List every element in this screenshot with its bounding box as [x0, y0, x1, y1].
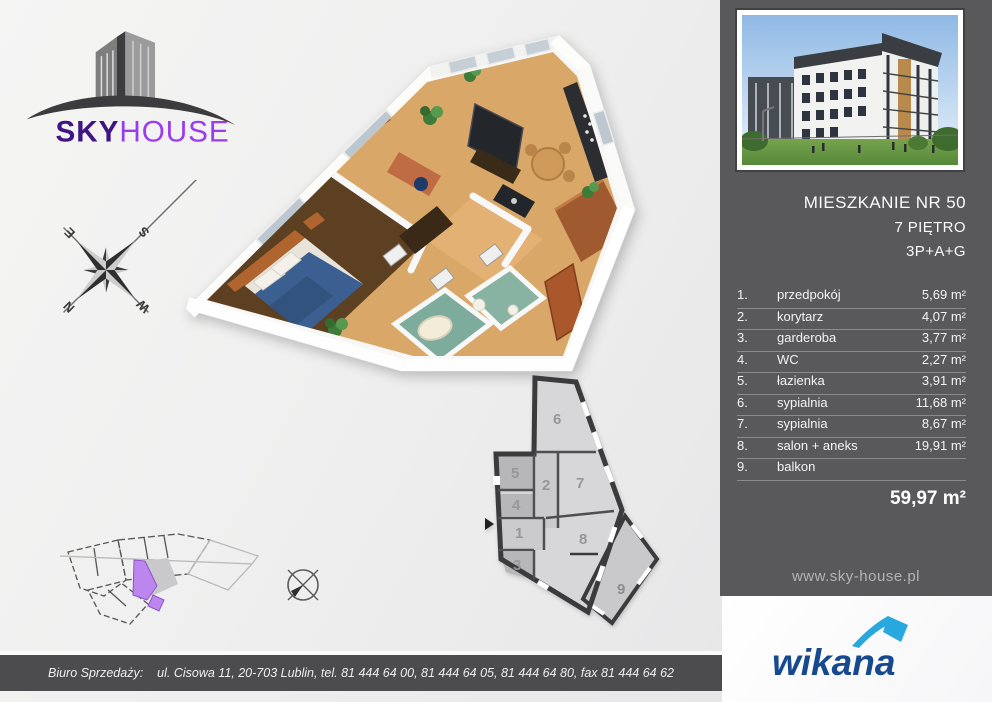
table-row: 9.balkon: [737, 459, 966, 481]
room-number: 8.: [737, 438, 777, 453]
table-row: 4.WC2,27 m²: [737, 352, 966, 374]
wikana-logo: wikana: [722, 596, 992, 702]
room-number-5: 5: [511, 465, 519, 482]
table-row: 5.łazienka3,91 m²: [737, 373, 966, 395]
room-name: balkon: [777, 459, 966, 474]
room-area: 4,07 m²: [922, 309, 966, 324]
table-row: 1.przedpokój5,69 m²: [737, 287, 966, 309]
room-number-8: 8: [579, 531, 587, 548]
room-area: 3,91 m²: [922, 373, 966, 388]
site-plan: [60, 510, 264, 632]
room-name: salon + aneks: [777, 438, 915, 453]
rooms-table: 1.przedpokój5,69 m² 2.korytarz4,07 m² 3.…: [737, 287, 966, 481]
total-area: 59,97 m²: [890, 488, 966, 510]
highlighted-unit-balcony: [148, 595, 164, 611]
room-number-7: 7: [576, 475, 584, 492]
room-name: sypialnia: [777, 416, 922, 431]
table-row: 7.sypialnia8,67 m²: [737, 416, 966, 438]
brand-sky: SKY: [55, 115, 119, 148]
building-icon: [96, 31, 155, 106]
apartment-title: MIESZKANIE NR 50: [804, 193, 966, 213]
room-name: garderoba: [777, 330, 922, 345]
room-number: 7.: [737, 416, 777, 431]
room-number: 9.: [737, 459, 777, 474]
room-number: 1.: [737, 287, 777, 302]
room-name: przedpokój: [777, 287, 922, 302]
entrance-arrow: [485, 518, 494, 530]
room-number-6: 6: [553, 411, 561, 428]
room-number-1: 1: [515, 525, 523, 542]
room-area: 2,27 m²: [922, 352, 966, 367]
room-number-9: 9: [617, 581, 625, 598]
table-row: 8.salon + aneks19,91 m²: [737, 438, 966, 460]
room-area: 11,68 m²: [916, 395, 966, 410]
sales-office-label: Biuro Sprzedaży:: [48, 666, 143, 680]
room-name: sypialnia: [777, 395, 916, 410]
dining-table: [532, 148, 564, 180]
building-photo: [742, 15, 958, 165]
layout-code: 3P+A+G: [906, 243, 966, 260]
toilet: [473, 299, 485, 311]
table-row: 6.sypialnia11,68 m²: [737, 395, 966, 417]
north-indicator-icon: [279, 561, 327, 609]
floor-label: 7 PIĘTRO: [894, 219, 966, 236]
chair: [563, 170, 575, 182]
picture-frame: [266, 126, 311, 168]
room-area: 3,77 m²: [922, 330, 966, 345]
room-number-3: 3: [513, 557, 521, 574]
room-name: korytarz: [777, 309, 922, 324]
room-area: 5,69 m²: [922, 287, 966, 302]
floorplan-3d: [183, 24, 653, 380]
room-number: 2.: [737, 309, 777, 324]
room-name: łazienka: [777, 373, 922, 388]
website-link[interactable]: www.sky-house.pl: [720, 568, 992, 585]
room-number: 6.: [737, 395, 777, 410]
room-number: 4.: [737, 352, 777, 367]
sink: [508, 305, 518, 315]
office-chair: [414, 177, 428, 191]
room-area: 19,91 m²: [915, 438, 966, 453]
chair: [525, 144, 537, 156]
info-panel: MIESZKANIE NR 50 7 PIĘTRO 3P+A+G 1.przed…: [720, 0, 992, 596]
table-row: 3.garderoba3,77 m²: [737, 330, 966, 352]
building-photo-frame: [735, 8, 965, 172]
footer-bar: Biuro Sprzedaży: ul. Cisowa 11, 20-703 L…: [0, 655, 722, 691]
room-number-2: 2: [542, 477, 550, 494]
floorplan-2d: 1 2 3 4 5 6 7 8 9: [482, 370, 672, 640]
sales-office-address: ul. Cisowa 11, 20-703 Lublin, tel. 81 44…: [157, 666, 674, 680]
room-number: 3.: [737, 330, 777, 345]
table-row: 2.korytarz4,07 m²: [737, 309, 966, 331]
room-number: 5.: [737, 373, 777, 388]
room-name: WC: [777, 352, 922, 367]
chair: [559, 142, 571, 154]
wikana-wordmark: wikana: [772, 642, 895, 684]
room-area: 8,67 m²: [922, 416, 966, 431]
room-number-4: 4: [512, 497, 521, 514]
